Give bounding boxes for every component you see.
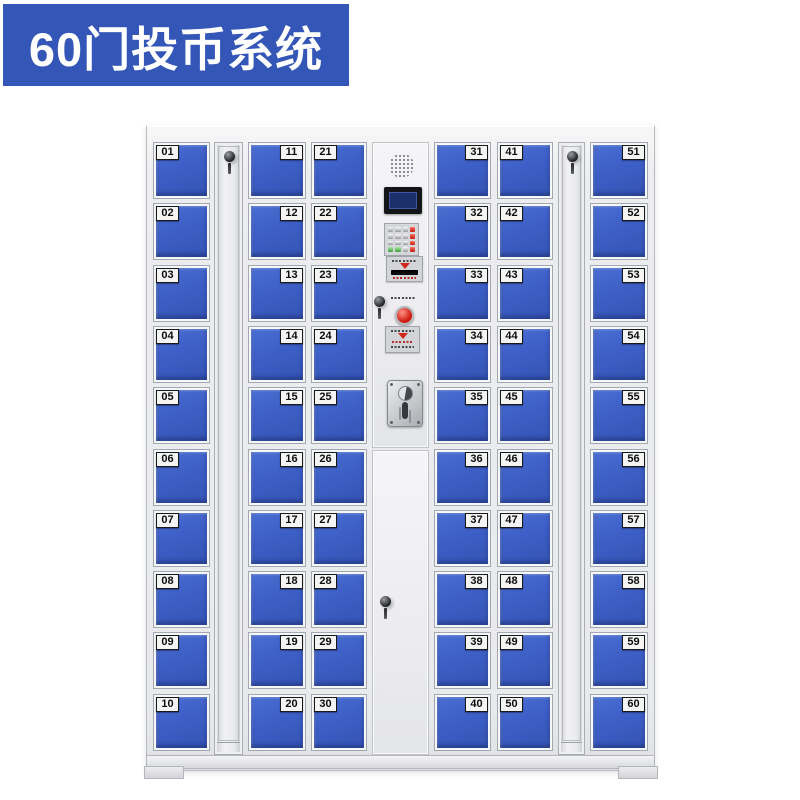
door-column-11-20: 11121314151617181920 <box>248 127 306 770</box>
locker-door-21: 21 <box>311 142 367 199</box>
locker-door-34: 34 <box>434 326 491 383</box>
door-number-plate: 14 <box>280 329 303 344</box>
locker-door-16: 16 <box>248 449 306 506</box>
door-number-plate: 06 <box>156 452 179 467</box>
door-number-plate: 01 <box>156 145 179 160</box>
locker-door-44: 44 <box>497 326 553 383</box>
door-number-plate: 46 <box>500 452 523 467</box>
locker-door-25: 25 <box>311 387 367 444</box>
door-number-plate: 19 <box>280 635 303 650</box>
locker-door-41: 41 <box>497 142 553 199</box>
instruction-label <box>385 326 420 353</box>
locker-door-52: 52 <box>590 203 648 260</box>
door-number-plate: 20 <box>280 697 303 712</box>
door-number-plate: 26 <box>314 452 337 467</box>
screw-icon <box>390 421 393 424</box>
door-number-plate: 13 <box>280 268 303 283</box>
door-number-plate: 50 <box>500 697 523 712</box>
micro-text <box>392 260 417 262</box>
key-red <box>410 247 415 252</box>
locker-door-28: 28 <box>311 571 367 628</box>
locker-door-39: 39 <box>434 632 491 689</box>
locker-door-12: 12 <box>248 203 306 260</box>
door-number-plate: 35 <box>465 390 488 405</box>
locker-door-36: 36 <box>434 449 491 506</box>
door-number-plate: 22 <box>314 206 337 221</box>
locker-door-57: 57 <box>590 510 648 567</box>
door-number-plate: 44 <box>500 329 523 344</box>
numeric-keypad <box>384 223 419 256</box>
locker-door-23: 23 <box>311 265 367 322</box>
locker-door-29: 29 <box>311 632 367 689</box>
door-number-plate: 12 <box>280 206 303 221</box>
locker-door-48: 48 <box>497 571 553 628</box>
locker-door-43: 43 <box>497 265 553 322</box>
micro-text-red <box>392 341 413 343</box>
door-number-plate: 53 <box>622 268 645 283</box>
locker-door-56: 56 <box>590 449 648 506</box>
door-number-plate: 39 <box>465 635 488 650</box>
coin-acceptor <box>387 380 423 427</box>
cabinet-foot-right <box>618 766 658 779</box>
locker-door-14: 14 <box>248 326 306 383</box>
locker-door-31: 31 <box>434 142 491 199</box>
locker-door-18: 18 <box>248 571 306 628</box>
door-number-plate: 55 <box>622 390 645 405</box>
micro-text <box>391 330 414 332</box>
service-key-lock-icon <box>374 296 385 307</box>
key <box>403 234 408 239</box>
door-number-plate: 25 <box>314 390 337 405</box>
locker-door-22: 22 <box>311 203 367 260</box>
locker-door-05: 05 <box>153 387 210 444</box>
side-lock-panel-right <box>558 142 585 755</box>
speaker-icon <box>389 153 414 178</box>
door-number-plate: 32 <box>465 206 488 221</box>
door-number-plate: 04 <box>156 329 179 344</box>
micro-text <box>391 297 415 299</box>
locker-door-24: 24 <box>311 326 367 383</box>
screw-icon <box>417 383 420 386</box>
door-number-plate: 18 <box>280 574 303 589</box>
door-number-plate: 52 <box>622 206 645 221</box>
door-number-plate: 42 <box>500 206 523 221</box>
locker-door-33: 33 <box>434 265 491 322</box>
door-number-plate: 34 <box>465 329 488 344</box>
locker-door-53: 53 <box>590 265 648 322</box>
lcd-screen <box>389 192 417 209</box>
door-number-plate: 09 <box>156 635 179 650</box>
locker-door-35: 35 <box>434 387 491 444</box>
key <box>403 247 408 252</box>
door-column-31-40: 31323334353637383940 <box>434 127 491 770</box>
door-number-plate: 08 <box>156 574 179 589</box>
door-number-plate: 24 <box>314 329 337 344</box>
door-number-plate: 54 <box>622 329 645 344</box>
locker-door-40: 40 <box>434 694 491 751</box>
door-number-plate: 49 <box>500 635 523 650</box>
panel-bottom-seam <box>217 742 240 743</box>
door-number-plate: 47 <box>500 513 523 528</box>
locker-door-03: 03 <box>153 265 210 322</box>
locker-door-30: 30 <box>311 694 367 751</box>
door-number-plate: 56 <box>622 452 645 467</box>
door-number-plate: 03 <box>156 268 179 283</box>
ticket-slot-panel <box>386 256 423 282</box>
door-number-plate: 23 <box>314 268 337 283</box>
control-column <box>372 127 429 770</box>
door-number-plate: 37 <box>465 513 488 528</box>
key <box>388 241 393 246</box>
locker-door-51: 51 <box>590 142 648 199</box>
key <box>395 227 400 232</box>
locker-door-10: 10 <box>153 694 210 751</box>
door-number-plate: 11 <box>280 145 303 160</box>
key-green <box>388 247 393 252</box>
locker-door-32: 32 <box>434 203 491 260</box>
door-number-plate: 40 <box>465 697 488 712</box>
ticket-slot <box>391 270 418 275</box>
door-column-01-10: 01020304050607080910 <box>153 127 210 770</box>
door-number-plate: 45 <box>500 390 523 405</box>
door-number-plate: 05 <box>156 390 179 405</box>
locker-door-01: 01 <box>153 142 210 199</box>
arrow-down-icon <box>400 263 410 269</box>
locker-door-38: 38 <box>434 571 491 628</box>
door-number-plate: 28 <box>314 574 337 589</box>
button-caption <box>391 297 415 299</box>
door-number-plate: 16 <box>280 452 303 467</box>
locker-door-55: 55 <box>590 387 648 444</box>
door-number-plate: 30 <box>314 697 337 712</box>
locker-door-19: 19 <box>248 632 306 689</box>
coin-return-button <box>395 306 414 325</box>
key <box>403 227 408 232</box>
locker-door-49: 49 <box>497 632 553 689</box>
door-number-plate: 29 <box>314 635 337 650</box>
door-number-plate: 38 <box>465 574 488 589</box>
key-red <box>410 234 415 239</box>
key <box>403 241 408 246</box>
locker-door-59: 59 <box>590 632 648 689</box>
locker-door-06: 06 <box>153 449 210 506</box>
control-panel-door <box>372 142 429 448</box>
locker-door-08: 08 <box>153 571 210 628</box>
door-number-plate: 15 <box>280 390 303 405</box>
locker-door-15: 15 <box>248 387 306 444</box>
side-lock-panel-left <box>214 142 243 755</box>
screw-icon <box>417 421 420 424</box>
micro-text-red <box>393 277 416 279</box>
locker-door-11: 11 <box>248 142 306 199</box>
locker-door-17: 17 <box>248 510 306 567</box>
locker-door-42: 42 <box>497 203 553 260</box>
door-number-plate: 36 <box>465 452 488 467</box>
locker-door-27: 27 <box>311 510 367 567</box>
micro-text <box>391 346 414 348</box>
door-number-plate: 33 <box>465 268 488 283</box>
locker-door-60: 60 <box>590 694 648 751</box>
key <box>388 227 393 232</box>
panel-bottom-seam <box>561 742 582 743</box>
door-number-plate: 27 <box>314 513 337 528</box>
locker-cabinet: 01020304050607080910 1112131415161718192… <box>146 125 655 771</box>
locker-door-20: 20 <box>248 694 306 751</box>
locker-door-02: 02 <box>153 203 210 260</box>
door-number-plate: 07 <box>156 513 179 528</box>
key <box>395 234 400 239</box>
door-number-plate: 10 <box>156 697 179 712</box>
cabinet-foot-left <box>144 766 184 779</box>
locker-door-07: 07 <box>153 510 210 567</box>
door-number-plate: 31 <box>465 145 488 160</box>
title-badge-label: 60门投币系统 <box>29 11 323 80</box>
door-column-41-50: 41424344454647484950 <box>497 127 553 770</box>
key-red <box>410 241 415 246</box>
door-number-plate: 48 <box>500 574 523 589</box>
locker-door-47: 47 <box>497 510 553 567</box>
screw-icon <box>390 383 393 386</box>
door-column-51-60: 51525354555657585960 <box>590 127 648 770</box>
locker-door-26: 26 <box>311 449 367 506</box>
key <box>388 234 393 239</box>
coin-return-lever-icon <box>402 402 408 419</box>
key-green <box>395 247 400 252</box>
lcd-display <box>384 187 422 214</box>
door-number-plate: 58 <box>622 574 645 589</box>
lower-door-lock-icon <box>380 596 391 607</box>
locker-door-50: 50 <box>497 694 553 751</box>
locker-door-37: 37 <box>434 510 491 567</box>
locker-door-13: 13 <box>248 265 306 322</box>
door-number-plate: 43 <box>500 268 523 283</box>
cabinet-base-rail <box>146 755 655 769</box>
door-number-plate: 60 <box>622 697 645 712</box>
locker-door-58: 58 <box>590 571 648 628</box>
door-number-plate: 51 <box>622 145 645 160</box>
door-number-plate: 57 <box>622 513 645 528</box>
locker-door-46: 46 <box>497 449 553 506</box>
key-red <box>410 227 415 232</box>
door-number-plate: 02 <box>156 206 179 221</box>
control-lower-door <box>372 450 429 755</box>
panel-key-lock-icon <box>224 151 235 162</box>
door-number-plate: 41 <box>500 145 523 160</box>
door-number-plate: 21 <box>314 145 337 160</box>
door-column-21-30: 21222324252627282930 <box>311 127 367 770</box>
door-number-plate: 17 <box>280 513 303 528</box>
panel-key-lock-icon <box>567 151 578 162</box>
title-badge: 60门投币系统 <box>3 4 349 86</box>
locker-door-04: 04 <box>153 326 210 383</box>
locker-door-54: 54 <box>590 326 648 383</box>
coin-slot-icon <box>398 386 413 401</box>
locker-door-45: 45 <box>497 387 553 444</box>
key <box>395 241 400 246</box>
locker-door-09: 09 <box>153 632 210 689</box>
arrow-down-icon <box>398 333 408 339</box>
door-number-plate: 59 <box>622 635 645 650</box>
